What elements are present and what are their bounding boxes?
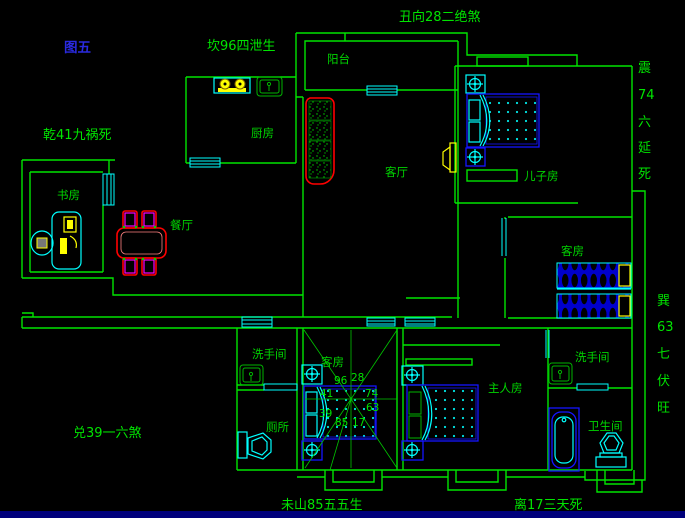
fengshui-west: 兑39一六煞 [73,426,142,441]
twin-bed [557,263,631,289]
fengshui-northwest: 乾41九祸死 [43,128,112,143]
dining-table [117,228,166,258]
study-chair [31,231,53,255]
window-corridor-mid2 [405,318,435,326]
compass-num-41: 41 [320,388,333,400]
study-desk [52,212,81,269]
room-label-dining: 餐厅 [170,218,193,232]
ceiling-fan-icon [402,366,423,385]
bottom-bar [0,511,685,518]
svg-text:震: 震 [638,61,651,76]
tv-speaker [443,143,456,172]
svg-text:旺: 旺 [657,401,670,416]
ceiling-fan-icon [402,441,423,460]
fengshui-north: 坎96四泄生 [207,39,276,54]
svg-text:巽: 巽 [657,294,670,309]
bathtub [549,408,579,471]
washroom-sink [240,365,263,385]
bed-sons-room [467,94,539,147]
toilet [238,432,271,459]
window-corridor-left [242,317,272,327]
svg-text:63: 63 [657,320,674,335]
figure-label: 图五 [64,40,91,56]
room-label-sons-room: 儿子房 [524,169,559,183]
bed-master [407,385,478,441]
master-shelf [406,359,472,365]
fengshui-northeast: 丑向28二绝煞 [399,9,481,25]
cad-viewport: 图五 坎96四泄生 丑向28二绝煞 乾41九祸死 兑39一六煞 未山85五五生 … [0,0,685,518]
window-kitchen [190,158,220,167]
sons-room-shelf [467,170,517,181]
svg-text:七: 七 [657,347,670,362]
door-guest-room [502,218,506,256]
compass-num-85: 85 [335,417,348,429]
twin-bed [557,294,631,318]
floor-plan-canvas[interactable]: 图五 坎96四泄生 丑向28二绝煞 乾41九祸死 兑39一六煞 未山85五五生 … [0,0,685,511]
sons-room-top-window [477,57,528,66]
fengshui-southwest: 未山85五五生 [281,498,363,511]
room-label-toilet: 厕所 [266,420,289,434]
dining-chair [123,211,138,228]
window-corridor-mid1 [367,318,395,326]
compass-star [304,330,397,470]
room-label-kitchen: 厨房 [251,126,274,140]
room-label-washroom-right: 洗手间 [575,350,610,364]
sofa [306,98,334,184]
fengshui-east-vertical: 震 74 六 延 死 [638,61,655,182]
room-label-living: 客厅 [385,165,408,179]
svg-text:延: 延 [638,141,651,156]
ceiling-fan-icon [302,365,322,384]
compass-num-17: 17 [352,417,365,429]
svg-text:伏: 伏 [657,374,670,389]
room-label-study: 书房 [57,188,80,202]
fengshui-south: 离17三天死 [514,497,583,511]
fengshui-southeast-vertical: 巽 63 七 伏 旺 [657,294,674,416]
door-study [103,174,114,205]
stove [214,78,250,93]
compass-num-63: 63 [366,402,379,414]
window-balcony [367,86,397,95]
room-label-bathroom: 卫生间 [588,419,623,433]
compass-num-74: 74 [365,388,379,400]
washroom-sink [549,363,572,384]
room-label-guest-center: 客房 [321,355,344,369]
room-label-master: 主人房 [488,381,523,395]
dining-chair [123,258,138,275]
kitchen-sink [257,77,282,96]
compass-num-28: 28 [351,372,364,384]
toilet [596,433,626,467]
ceiling-fan-icon [466,148,485,166]
svg-text:74: 74 [638,88,655,103]
dining-chair [142,258,157,275]
door-washroom-right [577,384,608,390]
room-label-guest-right: 客房 [561,244,584,258]
room-label-balcony: 阳台 [327,52,350,66]
compass-num-96: 96 [334,375,348,387]
dining-chair [142,211,157,228]
ceiling-fan-icon [466,75,485,93]
svg-text:六: 六 [638,115,651,130]
compass-num-39: 39 [319,408,332,420]
door-toilet [264,384,297,390]
svg-text:死: 死 [638,167,651,182]
room-label-washroom-left: 洗手间 [252,347,287,361]
